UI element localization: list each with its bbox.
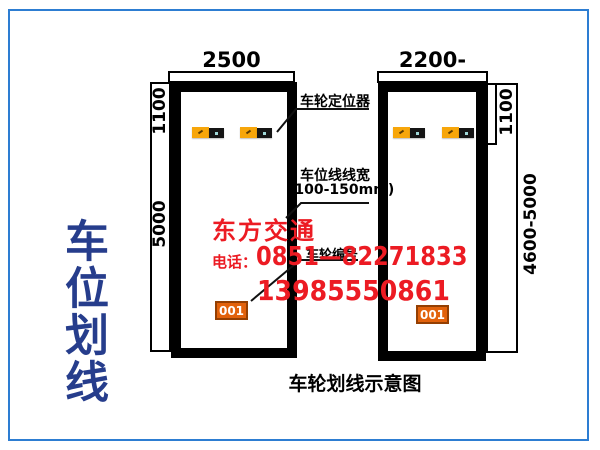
- watermark-phone-number-2: 13985550861: [257, 274, 450, 307]
- diagram-canvas: 车位划线 2500 1100 5000 2200-2300 1100 4600-…: [0, 0, 600, 450]
- watermark-company: 东方交通: [212, 211, 316, 246]
- leader-line-wheel-positioner: [277, 109, 369, 132]
- watermark-phone-number-1: 0851—82271833: [256, 242, 467, 272]
- watermark-phone-prefix: 电话：: [212, 251, 257, 272]
